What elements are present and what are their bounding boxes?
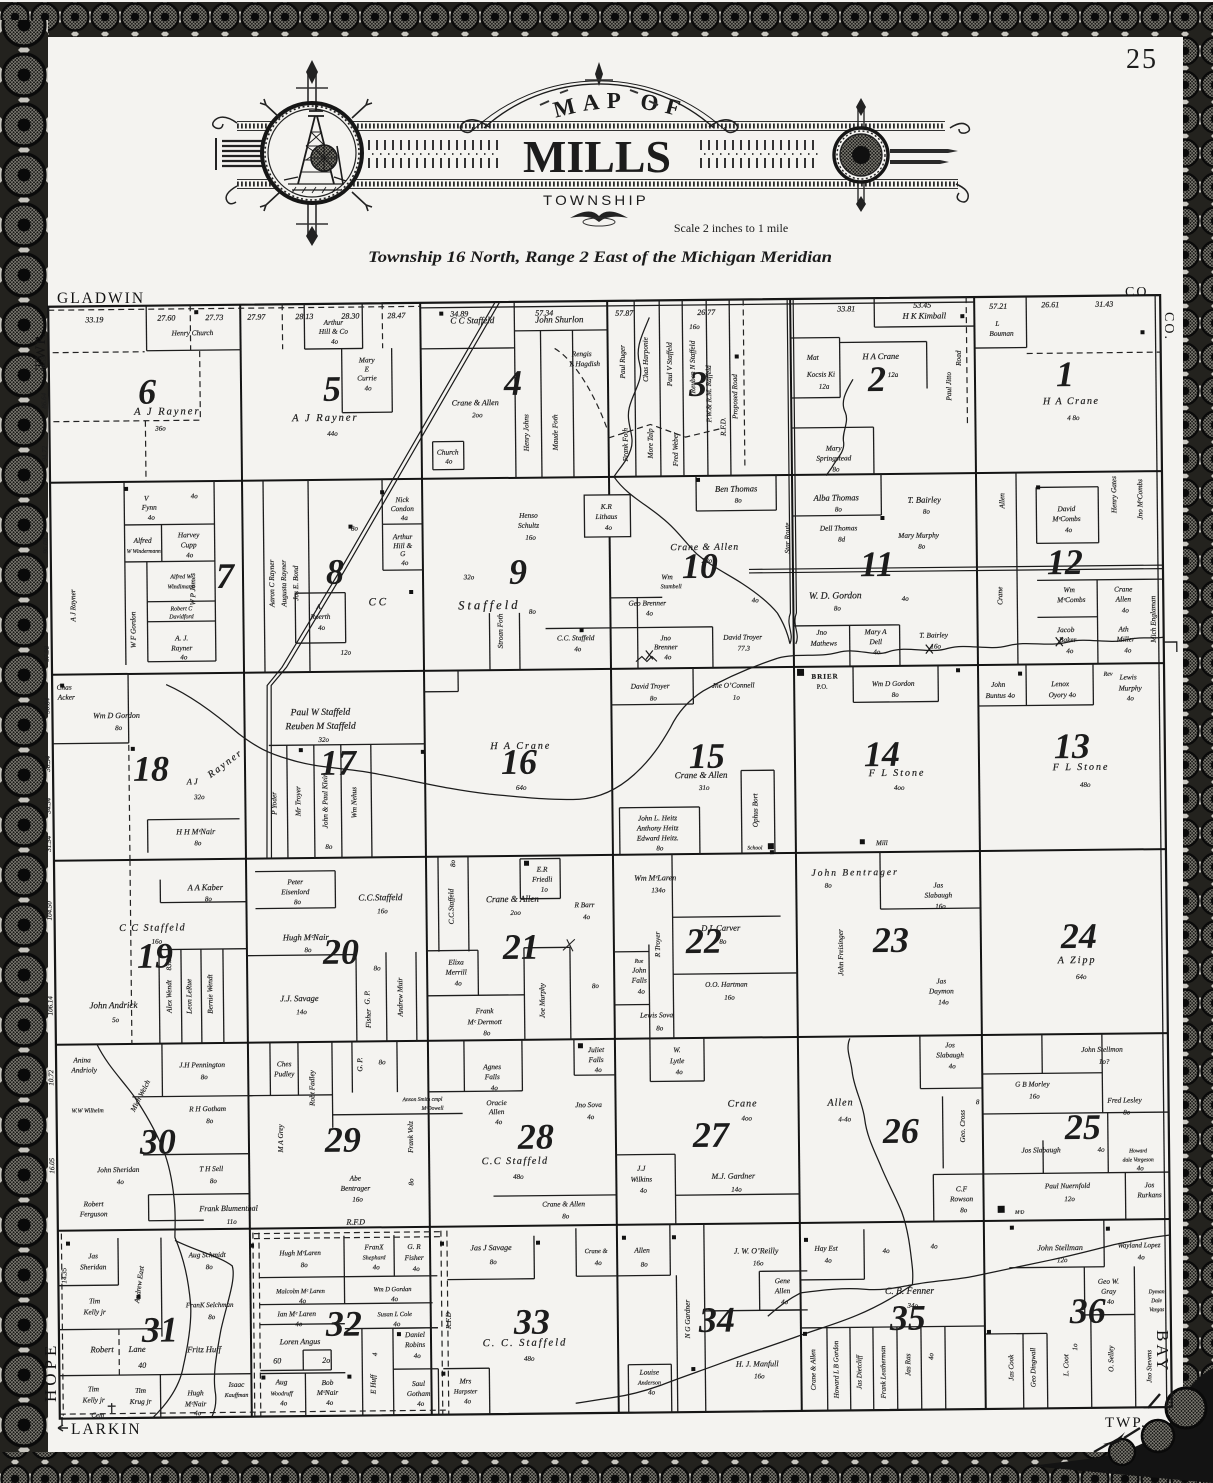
svg-text:R H Gotham: R H Gotham xyxy=(188,1104,226,1113)
svg-text:Paul Jitto: Paul Jitto xyxy=(944,372,953,402)
svg-text:4: 4 xyxy=(503,363,522,403)
svg-text:TOWNSHIP: TOWNSHIP xyxy=(543,192,649,208)
svg-text:40: 40 xyxy=(138,1361,146,1370)
svg-text:Frank Foth: Frank Foth xyxy=(620,428,629,463)
svg-text:P.O.: P.O. xyxy=(817,684,828,691)
svg-text:12a: 12a xyxy=(888,371,899,379)
svg-text:C.C Staffeld: C.C Staffeld xyxy=(482,1156,549,1168)
svg-text:A. J.: A. J. xyxy=(174,633,188,642)
svg-text:96.09: 96.09 xyxy=(42,537,50,553)
svg-text:4o: 4o xyxy=(1137,1164,1145,1172)
svg-text:Edward Heitz.: Edward Heitz. xyxy=(636,833,679,842)
svg-text:4-4o: 4-4o xyxy=(838,1115,851,1123)
svg-text:Friedli: Friedli xyxy=(531,875,552,884)
svg-text:Ian Mᶜ Laren: Ian Mᶜ Laren xyxy=(276,1309,316,1318)
svg-text:Paul W Staffeld: Paul W Staffeld xyxy=(290,707,351,719)
svg-text:31o: 31o xyxy=(698,784,710,792)
svg-text:4o: 4o xyxy=(605,524,613,532)
svg-text:Tim: Tim xyxy=(135,1386,146,1395)
svg-text:4o: 4o xyxy=(1107,1298,1115,1306)
svg-text:94.72: 94.72 xyxy=(41,445,49,461)
svg-text:Anina: Anina xyxy=(72,1055,91,1064)
svg-text:8o: 8o xyxy=(210,1177,218,1185)
svg-text:32o: 32o xyxy=(463,573,475,581)
svg-text:Mary A: Mary A xyxy=(864,627,888,636)
svg-text:4oo: 4oo xyxy=(741,1114,752,1122)
svg-text:48o: 48o xyxy=(513,1173,524,1181)
svg-text:36o: 36o xyxy=(154,425,166,433)
svg-text:Saul: Saul xyxy=(412,1379,425,1388)
svg-text:Isaac: Isaac xyxy=(228,1380,246,1389)
svg-text:Buntus 4o: Buntus 4o xyxy=(986,691,1016,700)
svg-text:4o: 4o xyxy=(646,609,654,617)
svg-text:28.47: 28.47 xyxy=(387,311,406,320)
svg-text:Anderson: Anderson xyxy=(637,1380,661,1386)
svg-text:G: G xyxy=(400,549,406,558)
svg-text:Mill: Mill xyxy=(875,839,888,847)
svg-text:John L. Heitz: John L. Heitz xyxy=(638,813,677,822)
svg-text:Fynn: Fynn xyxy=(141,503,157,512)
svg-text:Road: Road xyxy=(954,350,963,367)
svg-text:G B Morley: G B Morley xyxy=(1015,1079,1050,1088)
svg-text:27: 27 xyxy=(692,1115,731,1155)
svg-text:MᶜCombs: MᶜCombs xyxy=(1056,595,1086,604)
svg-text:Falls: Falls xyxy=(484,1072,500,1081)
svg-text:4o: 4o xyxy=(664,653,672,661)
svg-text:4o: 4o xyxy=(640,1187,648,1195)
svg-text:27.73: 27.73 xyxy=(205,313,223,322)
svg-text:Mᶜ Dermott: Mᶜ Dermott xyxy=(467,1017,503,1026)
svg-text:Hugh MᶜLaren: Hugh MᶜLaren xyxy=(278,1249,321,1257)
svg-text:Augusta Rayner: Augusta Rayner xyxy=(279,560,289,608)
svg-text:Fisher: Fisher xyxy=(364,1009,373,1029)
svg-text:8o: 8o xyxy=(483,1029,491,1037)
svg-text:Crane: Crane xyxy=(995,586,1004,605)
svg-text:Alfred: Alfred xyxy=(133,536,152,545)
svg-text:Scale 2 inches to 1 mile: Scale 2 inches to 1 mile xyxy=(674,221,788,235)
svg-text:Mr Troyer: Mr Troyer xyxy=(293,786,302,817)
svg-text:M A Grey: M A Grey xyxy=(276,1123,285,1153)
svg-text:Louise: Louise xyxy=(639,1367,660,1376)
svg-text:4a: 4a xyxy=(401,514,409,522)
svg-text:8o: 8o xyxy=(194,839,202,847)
svg-text:22: 22 xyxy=(685,921,722,961)
svg-text:4o: 4o xyxy=(883,1247,891,1255)
svg-text:Allen: Allen xyxy=(997,493,1006,510)
svg-text:97.98: 97.98 xyxy=(43,645,51,661)
svg-text:G. P.: G. P. xyxy=(355,1057,364,1072)
svg-text:1: 1 xyxy=(1056,354,1074,394)
svg-text:4o: 4o xyxy=(413,1265,421,1273)
svg-text:Jno: Jno xyxy=(660,633,671,642)
svg-text:Jas: Jas xyxy=(933,880,943,889)
svg-text:Wilkins: Wilkins xyxy=(631,1174,653,1183)
svg-text:4o: 4o xyxy=(299,1297,307,1305)
svg-text:14o: 14o xyxy=(296,1008,307,1016)
svg-text:Kocsis Ki: Kocsis Ki xyxy=(806,370,835,379)
svg-text:Gene: Gene xyxy=(775,1276,791,1285)
svg-text:M.J. Gardner: M.J. Gardner xyxy=(711,1171,756,1180)
svg-text:8o: 8o xyxy=(923,508,931,516)
svg-text:Hill & Co: Hill & Co xyxy=(318,327,349,336)
svg-text:A Zipp: A Zipp xyxy=(1057,955,1097,966)
svg-text:8: 8 xyxy=(326,552,344,592)
svg-text:Dell: Dell xyxy=(868,637,882,646)
svg-text:4o: 4o xyxy=(194,1409,202,1417)
svg-text:Bob: Bob xyxy=(322,1378,334,1387)
svg-text:Robert: Robert xyxy=(83,1199,105,1208)
svg-text:30: 30 xyxy=(139,1121,176,1161)
svg-text:4o: 4o xyxy=(414,1352,422,1360)
svg-text:27.60: 27.60 xyxy=(157,313,175,322)
svg-text:Aug: Aug xyxy=(275,1377,288,1386)
svg-text:Chas: Chas xyxy=(57,683,72,692)
svg-text:E: E xyxy=(364,364,370,373)
svg-text:8o: 8o xyxy=(407,1178,415,1186)
svg-text:Frank Volz: Frank Volz xyxy=(406,1121,415,1154)
svg-text:W. D. Gordon: W. D. Gordon xyxy=(809,591,862,602)
svg-text:C.F: C.F xyxy=(956,1184,968,1193)
svg-text:Staffeld: Staffeld xyxy=(458,598,520,613)
svg-text:Lane: Lane xyxy=(128,1344,146,1354)
svg-text:Jas Cook: Jas Cook xyxy=(1007,1354,1015,1381)
svg-text:Aaron C Rayner: Aaron C Rayner xyxy=(267,559,277,608)
svg-text:Fred Lesley: Fred Lesley xyxy=(1106,1095,1142,1104)
svg-text:C.C.Staffeld: C.C.Staffeld xyxy=(446,888,455,924)
svg-text:8o: 8o xyxy=(294,898,302,906)
svg-text:8o: 8o xyxy=(960,1206,968,1214)
svg-text:4o: 4o xyxy=(373,1263,381,1271)
svg-text:Andrioly: Andrioly xyxy=(70,1065,97,1074)
svg-text:4o: 4o xyxy=(117,1178,125,1186)
svg-text:8o: 8o xyxy=(208,1313,216,1321)
svg-text:Gotham: Gotham xyxy=(407,1389,431,1398)
svg-text:Lewis: Lewis xyxy=(1119,672,1137,681)
svg-text:31.54: 31.54 xyxy=(45,835,53,852)
svg-text:GLADWIN: GLADWIN xyxy=(57,290,145,307)
svg-text:Pudley: Pudley xyxy=(273,1069,295,1078)
svg-text:P Yoder: P Yoder xyxy=(269,792,278,816)
svg-text:Proposed Road: Proposed Road xyxy=(730,374,739,420)
svg-text:Frank Leatherman: Frank Leatherman xyxy=(879,1345,888,1399)
svg-text:Loren Angus: Loren Angus xyxy=(279,1337,321,1346)
svg-text:John Freisinger: John Freisinger xyxy=(836,929,845,976)
svg-text:Ferguson: Ferguson xyxy=(79,1209,108,1218)
svg-text:Crane & Allen: Crane & Allen xyxy=(452,398,499,407)
svg-text:7: 7 xyxy=(216,556,236,596)
svg-text:Elixa: Elixa xyxy=(447,957,464,966)
svg-text:Krug jr: Krug jr xyxy=(129,1397,152,1406)
svg-text:C C Staffeld: C C Staffeld xyxy=(119,922,186,934)
svg-text:4o: 4o xyxy=(873,648,881,656)
svg-text:Tim: Tim xyxy=(89,1296,100,1305)
svg-text:G. R: G. R xyxy=(407,1242,421,1251)
svg-text:57.21: 57.21 xyxy=(989,302,1007,311)
svg-text:4o: 4o xyxy=(676,1068,684,1076)
svg-text:Allen: Allen xyxy=(488,1107,505,1116)
svg-text:8o: 8o xyxy=(379,1058,387,1066)
svg-text:12o: 12o xyxy=(1057,1256,1068,1264)
svg-text:4o: 4o xyxy=(902,595,910,603)
svg-text:O.O. Hartman: O.O. Hartman xyxy=(705,979,748,988)
svg-text:John Stellman: John Stellman xyxy=(1037,1243,1083,1252)
svg-text:FranX: FranX xyxy=(363,1242,384,1251)
svg-text:Dyman: Dyman xyxy=(1148,1289,1165,1295)
svg-text:Crane: Crane xyxy=(728,1098,758,1109)
svg-text:4o: 4o xyxy=(391,1295,399,1303)
svg-text:W Windermann: W Windermann xyxy=(127,549,161,555)
svg-text:8o: 8o xyxy=(115,724,123,732)
svg-text:HOPE: HOPE xyxy=(41,1342,60,1402)
svg-text:Jos: Jos xyxy=(1145,1180,1155,1189)
svg-text:T. Bairley: T. Bairley xyxy=(908,494,942,504)
svg-text:Rowson: Rowson xyxy=(949,1194,974,1203)
svg-text:104.50: 104.50 xyxy=(45,901,53,921)
svg-text:50.84: 50.84 xyxy=(43,697,51,713)
svg-text:A J Rayner: A J Rayner xyxy=(68,589,77,623)
svg-text:Baker: Baker xyxy=(1059,635,1077,644)
svg-text:Jos: Jos xyxy=(945,1040,955,1049)
svg-text:Condon: Condon xyxy=(391,504,415,513)
svg-text:32o: 32o xyxy=(193,793,205,801)
svg-text:Wm: Wm xyxy=(661,572,672,581)
svg-text:134o: 134o xyxy=(651,886,666,894)
svg-text:Davidford: Davidford xyxy=(168,613,195,620)
svg-text:8o: 8o xyxy=(832,465,840,473)
svg-text:Cem: Cem xyxy=(91,1411,104,1419)
svg-text:Bouman: Bouman xyxy=(989,329,1014,338)
svg-text:Abe: Abe xyxy=(349,1174,362,1183)
svg-text:A J Rayner: A J Rayner xyxy=(291,413,359,425)
svg-text:25: 25 xyxy=(1126,44,1158,75)
svg-text:Eisenlord: Eisenlord xyxy=(280,887,310,896)
svg-text:H. J. Manfull: H. J. Manfull xyxy=(735,1359,780,1368)
svg-text:8o: 8o xyxy=(834,604,842,612)
svg-text:Jno Sova: Jno Sova xyxy=(575,1100,602,1109)
svg-text:Lenox: Lenox xyxy=(1050,679,1070,688)
svg-text:14o: 14o xyxy=(731,1186,742,1194)
svg-text:BAY: BAY xyxy=(1153,1330,1172,1373)
svg-text:Mich Englaman: Mich Englaman xyxy=(1148,595,1158,643)
svg-text:4o: 4o xyxy=(445,458,453,466)
svg-text:Fred Weber: Fred Weber xyxy=(671,432,680,467)
svg-text:8: 8 xyxy=(976,1098,980,1106)
svg-text:K.R: K.R xyxy=(600,502,613,511)
svg-text:8d: 8d xyxy=(838,535,846,543)
svg-text:4o: 4o xyxy=(455,979,463,987)
svg-text:Ben Thomas: Ben Thomas xyxy=(715,483,758,493)
svg-text:Crane & Allen: Crane & Allen xyxy=(809,1349,817,1391)
svg-text:Woodruff: Woodruff xyxy=(270,1390,294,1397)
svg-text:C. C. Staffeld: C. C. Staffeld xyxy=(483,1337,568,1349)
svg-text:31: 31 xyxy=(141,1309,178,1349)
svg-text:Jas: Jas xyxy=(88,1251,98,1260)
svg-text:Kelly jr: Kelly jr xyxy=(82,1395,105,1404)
svg-text:L Hagdish: L Hagdish xyxy=(569,359,601,368)
svg-text:16: 16 xyxy=(501,742,537,782)
svg-text:26.61: 26.61 xyxy=(1041,300,1059,309)
svg-text:Crane: Crane xyxy=(1114,584,1133,593)
svg-text:10: 10 xyxy=(682,546,718,586)
svg-text:4o: 4o xyxy=(180,653,188,661)
svg-text:4o: 4o xyxy=(331,338,339,346)
svg-text:13: 13 xyxy=(1054,726,1090,766)
svg-text:24: 24 xyxy=(1060,916,1097,956)
svg-text:8o: 8o xyxy=(325,843,333,851)
svg-text:Daymon: Daymon xyxy=(928,986,954,995)
svg-text:4o: 4o xyxy=(1066,647,1074,655)
svg-text:8o: 8o xyxy=(562,1212,570,1220)
svg-text:A.: A. xyxy=(315,602,323,611)
svg-text:Wm D Gordon: Wm D Gordon xyxy=(93,711,140,720)
svg-text:Slabaugh: Slabaugh xyxy=(936,1050,964,1059)
svg-text:Leon LeRue: Leon LeRue xyxy=(184,978,193,1015)
svg-text:A A Kaber: A A Kaber xyxy=(186,882,223,892)
svg-text:27.97: 27.97 xyxy=(247,312,266,321)
svg-text:8o: 8o xyxy=(656,844,664,852)
svg-text:Wayland Lopez: Wayland Lopez xyxy=(1118,1241,1161,1249)
svg-text:Falls: Falls xyxy=(631,976,647,985)
svg-text:83.33: 83.33 xyxy=(165,954,173,970)
svg-text:John Sheridan: John Sheridan xyxy=(97,1165,140,1174)
svg-text:8o: 8o xyxy=(918,543,926,551)
svg-text:Juliet: Juliet xyxy=(588,1045,605,1054)
svg-text:H A Crane: H A Crane xyxy=(1042,396,1100,408)
svg-text:R.F.D: R.F.D xyxy=(444,1311,453,1330)
svg-text:Jacob: Jacob xyxy=(1057,625,1075,634)
svg-text:R.F.D.: R.F.D. xyxy=(718,417,727,437)
svg-text:Kelly jr: Kelly jr xyxy=(83,1307,106,1316)
svg-text:10.72: 10.72 xyxy=(47,1069,55,1085)
svg-text:Mrs: Mrs xyxy=(459,1376,472,1385)
svg-text:57.87: 57.87 xyxy=(615,309,634,318)
svg-text:Jas Ras: Jas Ras xyxy=(903,1353,912,1376)
svg-text:5o: 5o xyxy=(112,1016,120,1024)
svg-text:4o: 4o xyxy=(927,1353,935,1361)
svg-text:16o: 16o xyxy=(352,1195,363,1203)
svg-text:C. B. Fenner: C. B. Fenner xyxy=(885,1287,934,1298)
svg-text:Hay Est: Hay Est xyxy=(813,1244,838,1253)
svg-text:Reuben M Staffeld: Reuben M Staffeld xyxy=(284,721,356,733)
svg-text:L: L xyxy=(994,319,999,328)
svg-text:More Talp: More Talp xyxy=(645,428,654,460)
svg-text:A J Rayner: A J Rayner xyxy=(133,406,201,418)
svg-text:60: 60 xyxy=(273,1356,281,1365)
svg-text:21: 21 xyxy=(502,927,539,967)
svg-text:TWP.: TWP. xyxy=(1105,1415,1147,1431)
svg-text:Maude Foth: Maude Foth xyxy=(550,414,559,451)
svg-text:34.54: 34.54 xyxy=(44,797,52,814)
svg-text:Wm MᶜLaren: Wm MᶜLaren xyxy=(634,873,676,882)
svg-text:Frank Blumenthal: Frank Blumenthal xyxy=(198,1204,258,1214)
svg-text:4o: 4o xyxy=(401,559,409,567)
svg-text:Henry Church: Henry Church xyxy=(171,328,214,337)
svg-text:J.J. Savage: J.J. Savage xyxy=(280,993,319,1003)
svg-text:Harvey: Harvey xyxy=(177,530,200,539)
svg-text:David: David xyxy=(1056,504,1075,513)
svg-text:J.J: J.J xyxy=(637,1164,646,1173)
svg-text:Robins: Robins xyxy=(404,1340,426,1349)
svg-text:8o: 8o xyxy=(650,694,658,702)
svg-text:64o: 64o xyxy=(516,784,527,792)
svg-text:36: 36 xyxy=(1069,1291,1106,1331)
svg-text:Howard L B Gordon: Howard L B Gordon xyxy=(832,1340,841,1399)
svg-text:32: 32 xyxy=(325,1304,362,1344)
svg-text:Crane & Allen: Crane & Allen xyxy=(675,770,728,781)
svg-text:4o: 4o xyxy=(365,384,373,392)
svg-text:4o: 4o xyxy=(1124,646,1132,654)
svg-text:W.: W. xyxy=(673,1045,681,1054)
svg-text:Chas Harponie: Chas Harponie xyxy=(641,336,650,382)
svg-text:CO: CO xyxy=(1125,285,1148,300)
svg-text:4o: 4o xyxy=(595,1066,603,1074)
svg-text:L. Coot: L. Coot xyxy=(1061,1353,1070,1377)
svg-text:3: 3 xyxy=(688,364,707,404)
svg-text:John & Paul Klein: John & Paul Klein xyxy=(320,773,330,828)
svg-text:F L Stone: F L Stone xyxy=(1052,762,1110,774)
svg-text:G. P.: G. P. xyxy=(362,990,371,1005)
svg-text:4o: 4o xyxy=(326,1399,334,1407)
svg-text:H K Kimball: H K Kimball xyxy=(902,310,947,320)
svg-text:Rev: Rev xyxy=(1103,672,1113,678)
svg-text:76.55: 76.55 xyxy=(40,355,48,371)
svg-text:R Troyer: R Troyer xyxy=(653,931,662,958)
svg-text:David Troyer: David Troyer xyxy=(630,681,670,690)
svg-text:Mat: Mat xyxy=(806,353,820,362)
svg-text:Ches: Ches xyxy=(277,1059,292,1068)
svg-text:Kauffman: Kauffman xyxy=(224,1392,249,1399)
svg-text:W.W Wilhelm: W.W Wilhelm xyxy=(72,1108,105,1114)
svg-text:Slabaugh: Slabaugh xyxy=(925,890,953,899)
svg-text:H H MᶜNair: H H MᶜNair xyxy=(175,827,216,836)
svg-text:4 8o: 4 8o xyxy=(1067,414,1080,422)
svg-text:4o: 4o xyxy=(595,1259,603,1267)
svg-text:Anson Smith cmpl: Anson Smith cmpl xyxy=(402,1097,443,1103)
svg-text:4o: 4o xyxy=(587,1113,595,1121)
svg-text:Merrill: Merrill xyxy=(445,967,467,976)
svg-text:MᶜNair: MᶜNair xyxy=(316,1388,339,1397)
svg-text:4: 4 xyxy=(371,1352,379,1356)
svg-text:53.45: 53.45 xyxy=(913,301,931,310)
svg-text:23: 23 xyxy=(872,920,909,960)
svg-text:E Huff: E Huff xyxy=(368,1374,377,1395)
svg-text:Stambell: Stambell xyxy=(661,584,682,590)
svg-text:Allen: Allen xyxy=(826,1097,853,1108)
svg-text:4o: 4o xyxy=(648,1388,656,1396)
svg-text:Star Route: Star Route xyxy=(782,522,791,554)
svg-text:MᶜCombs: MᶜCombs xyxy=(1051,514,1081,523)
svg-text:MILLS: MILLS xyxy=(523,131,671,182)
svg-text:16o: 16o xyxy=(754,1372,765,1380)
svg-text:Crane &: Crane & xyxy=(585,1248,609,1255)
svg-text:4o: 4o xyxy=(1065,526,1073,534)
svg-text:4o: 4o xyxy=(752,596,760,604)
svg-text:33: 33 xyxy=(513,1302,550,1342)
svg-text:O. Selley: O. Selley xyxy=(1106,1345,1115,1372)
svg-text:Mary: Mary xyxy=(825,443,843,452)
svg-text:4o: 4o xyxy=(417,1400,425,1408)
svg-text:8o: 8o xyxy=(641,1261,649,1269)
svg-text:4o: 4o xyxy=(583,913,591,921)
svg-text:Joe Murphy: Joe Murphy xyxy=(537,982,546,1018)
svg-text:8o: 8o xyxy=(529,608,537,616)
svg-text:Bernie Wendt: Bernie Wendt xyxy=(205,973,214,1013)
svg-text:Springstead: Springstead xyxy=(816,453,851,462)
svg-text:16.05: 16.05 xyxy=(48,1157,56,1173)
svg-text:8o: 8o xyxy=(201,1073,209,1081)
svg-text:16o: 16o xyxy=(753,1259,764,1267)
svg-text:C.C.Staffeld: C.C.Staffeld xyxy=(358,892,403,902)
